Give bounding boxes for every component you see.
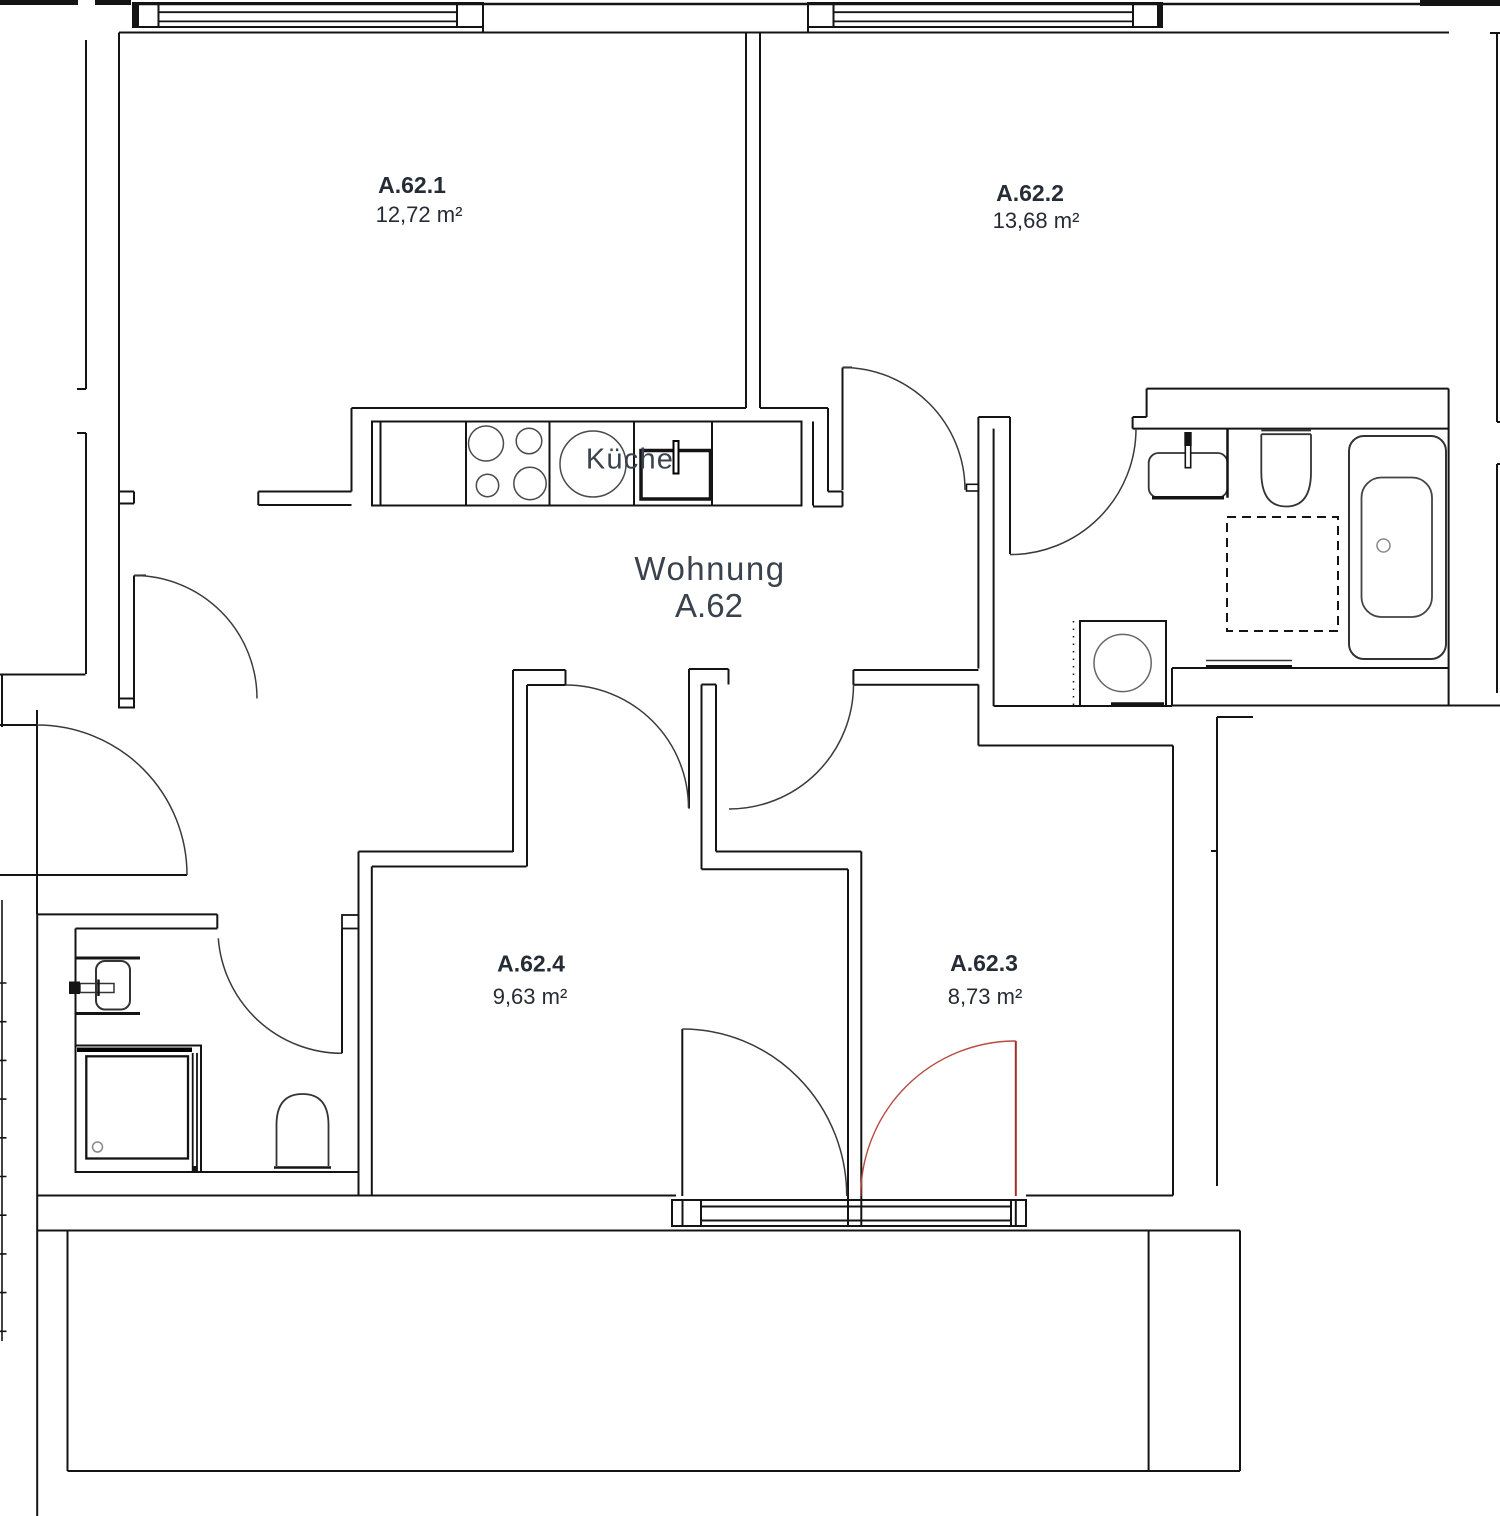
- svg-text:A.62.2: A.62.2: [996, 180, 1064, 206]
- svg-text:A.62.1: A.62.1: [378, 172, 446, 198]
- svg-text:13,68 m²: 13,68 m²: [993, 208, 1080, 233]
- svg-text:8,73 m²: 8,73 m²: [948, 984, 1023, 1009]
- svg-text:Küche: Küche: [586, 444, 674, 476]
- svg-text:9,63 m²: 9,63 m²: [493, 984, 568, 1009]
- svg-text:A.62.3: A.62.3: [950, 950, 1018, 976]
- svg-text:Wohnung: Wohnung: [634, 550, 785, 587]
- svg-text:A.62.4: A.62.4: [497, 951, 565, 977]
- svg-text:A.62: A.62: [675, 587, 743, 624]
- svg-text:12,72 m²: 12,72 m²: [376, 202, 463, 227]
